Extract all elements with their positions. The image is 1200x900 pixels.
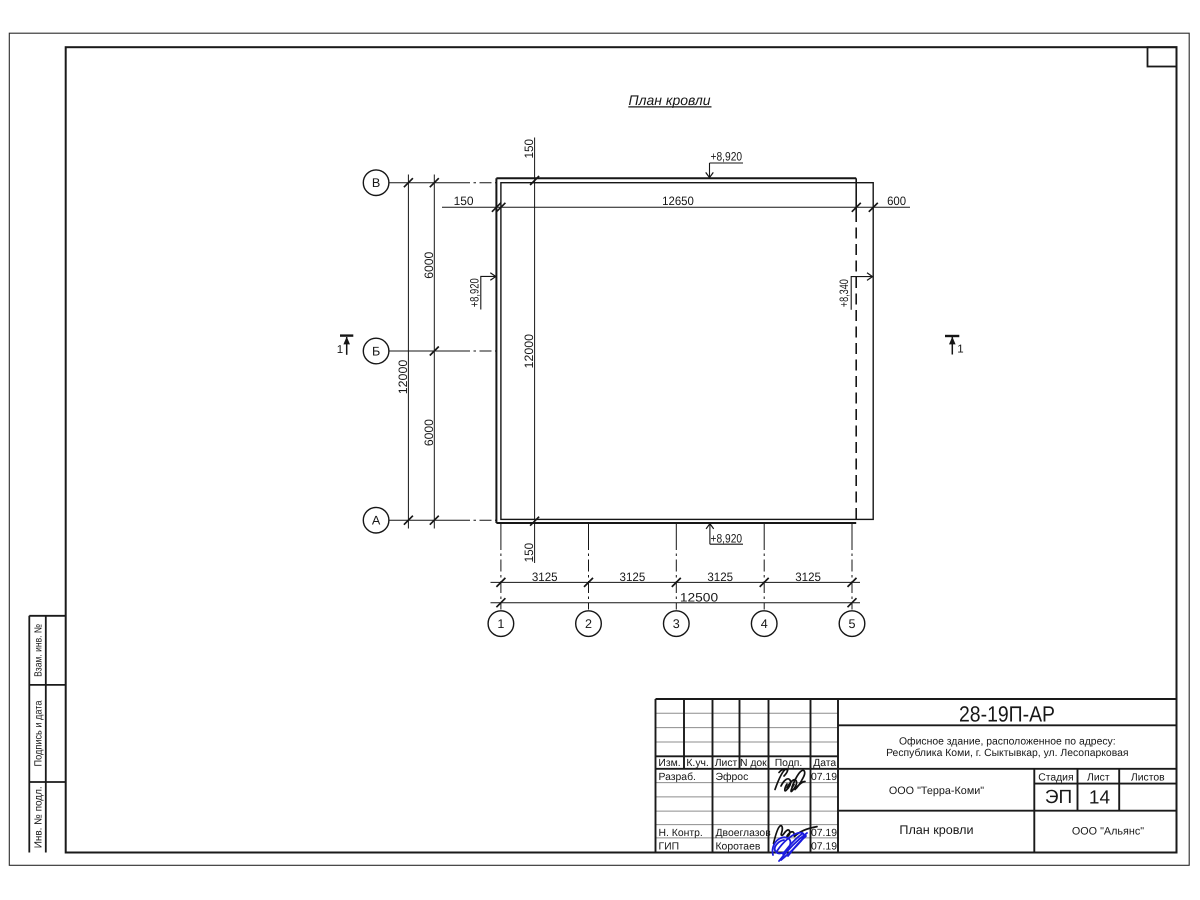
- svg-text:12650: 12650: [662, 194, 694, 208]
- svg-text:+8,340: +8,340: [837, 279, 851, 307]
- svg-text:3: 3: [673, 617, 680, 631]
- svg-text:Дата: Дата: [813, 758, 836, 769]
- svg-text:14: 14: [1089, 787, 1111, 808]
- svg-text:Лист: Лист: [1087, 772, 1110, 783]
- svg-text:Взам. инв. №: Взам. инв. №: [33, 624, 44, 677]
- svg-text:600: 600: [887, 194, 906, 208]
- svg-text:Лист: Лист: [715, 758, 738, 769]
- svg-text:В: В: [372, 176, 380, 190]
- svg-text:План кровли: План кровли: [899, 823, 973, 837]
- svg-text:150: 150: [522, 139, 536, 159]
- svg-text:12000: 12000: [522, 334, 536, 369]
- svg-text:2: 2: [585, 617, 592, 631]
- svg-text:3125: 3125: [532, 570, 558, 584]
- svg-text:1: 1: [957, 344, 963, 356]
- svg-text:Изм.: Изм.: [658, 758, 680, 769]
- svg-text:ЭП: ЭП: [1045, 787, 1072, 808]
- svg-text:Подп.: Подп.: [775, 758, 803, 769]
- svg-text:Разраб.: Разраб.: [659, 772, 696, 783]
- svg-text:Н. Контр.: Н. Контр.: [659, 828, 703, 839]
- svg-text:6000: 6000: [422, 251, 436, 278]
- svg-text:ООО "Терра-Коми": ООО "Терра-Коми": [889, 785, 984, 797]
- svg-text:150: 150: [522, 543, 536, 563]
- svg-text:4: 4: [761, 617, 768, 631]
- svg-text:Коротаев: Коротаев: [716, 841, 761, 852]
- svg-text:3125: 3125: [620, 570, 646, 584]
- svg-text:А: А: [372, 514, 381, 528]
- svg-text:1: 1: [497, 617, 504, 631]
- svg-text:+8,920: +8,920: [711, 149, 743, 163]
- svg-text:07.19: 07.19: [811, 841, 837, 852]
- svg-text:12500: 12500: [680, 590, 718, 604]
- svg-text:Подпись и дата: Подпись и дата: [33, 700, 44, 766]
- svg-text:3125: 3125: [707, 570, 733, 584]
- svg-text:5: 5: [848, 617, 855, 631]
- svg-text:3125: 3125: [795, 570, 821, 584]
- svg-text:6000: 6000: [422, 419, 436, 446]
- svg-text:План кровли: План кровли: [629, 92, 711, 108]
- svg-text:Стадия: Стадия: [1038, 772, 1073, 783]
- svg-text:Эфрос: Эфрос: [716, 772, 749, 783]
- svg-text:+8,920: +8,920: [711, 531, 743, 545]
- svg-text:N док.: N док.: [740, 758, 770, 769]
- svg-text:К.уч.: К.уч.: [686, 758, 708, 769]
- svg-text:Двоеглазов: Двоеглазов: [716, 828, 772, 839]
- svg-text:07.19: 07.19: [811, 772, 837, 783]
- svg-text:+8,920: +8,920: [468, 278, 482, 307]
- svg-text:07.19: 07.19: [811, 828, 837, 839]
- svg-text:Б: Б: [372, 345, 380, 359]
- svg-text:Республика Коми, г. Сыктывкар,: Республика Коми, г. Сыктывкар, ул. Лесоп…: [886, 748, 1128, 759]
- svg-text:Инв. № подл.: Инв. № подл.: [33, 786, 44, 848]
- svg-text:1: 1: [337, 344, 343, 356]
- svg-text:28-19П-АР: 28-19П-АР: [959, 701, 1055, 726]
- svg-text:ГИП: ГИП: [659, 841, 680, 852]
- svg-text:150: 150: [454, 194, 474, 208]
- svg-text:Листов: Листов: [1131, 772, 1165, 783]
- svg-text:Офисное здание, расположенное: Офисное здание, расположенное по адресу:: [899, 736, 1116, 747]
- svg-text:12000: 12000: [396, 360, 410, 395]
- svg-text:ООО "Альянс": ООО "Альянс": [1072, 826, 1144, 838]
